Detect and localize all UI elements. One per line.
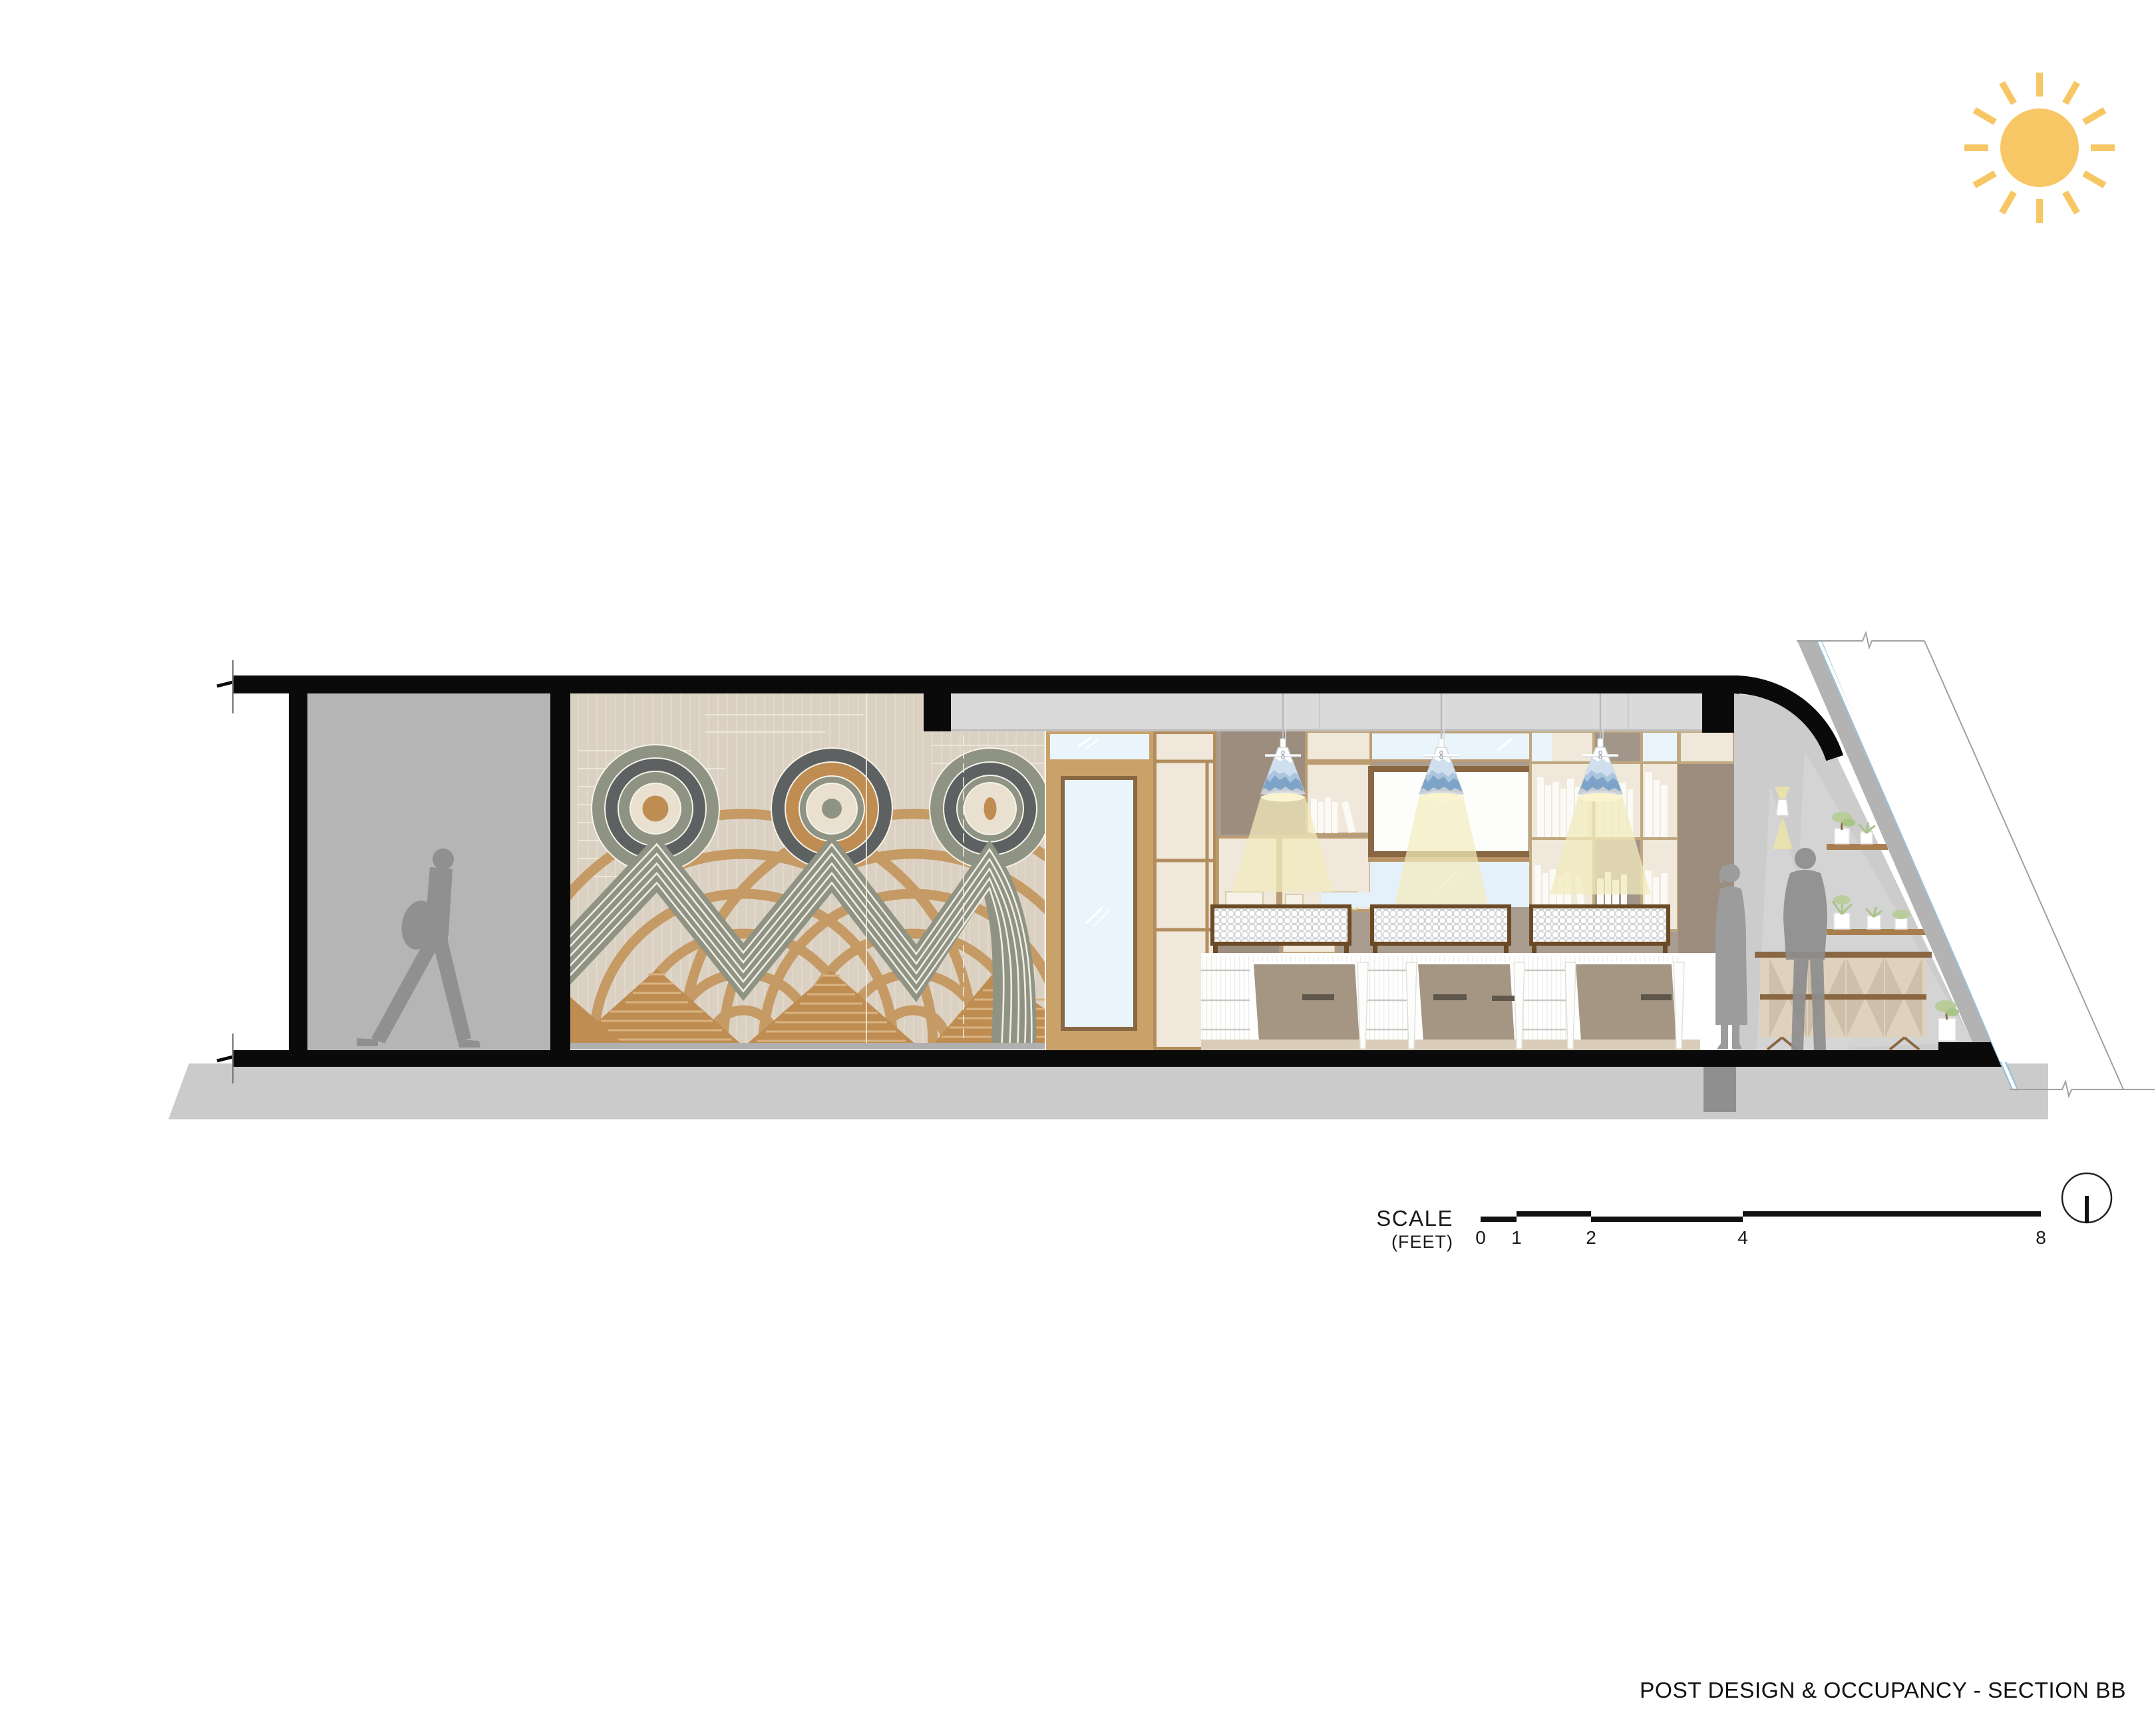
svg-text:POST DESIGN & OCCUPANCY - SECT: POST DESIGN & OCCUPANCY - SECTION BB <box>1640 1678 2126 1703</box>
svg-text:0: 0 <box>1475 1227 1486 1248</box>
svg-text:SCALE: SCALE <box>1376 1206 1453 1231</box>
svg-text:1: 1 <box>1511 1227 1522 1248</box>
svg-text:(FEET): (FEET) <box>1391 1232 1453 1252</box>
svg-text:8: 8 <box>2036 1227 2046 1248</box>
svg-text:4: 4 <box>1737 1227 1748 1248</box>
svg-text:2: 2 <box>1586 1227 1596 1248</box>
